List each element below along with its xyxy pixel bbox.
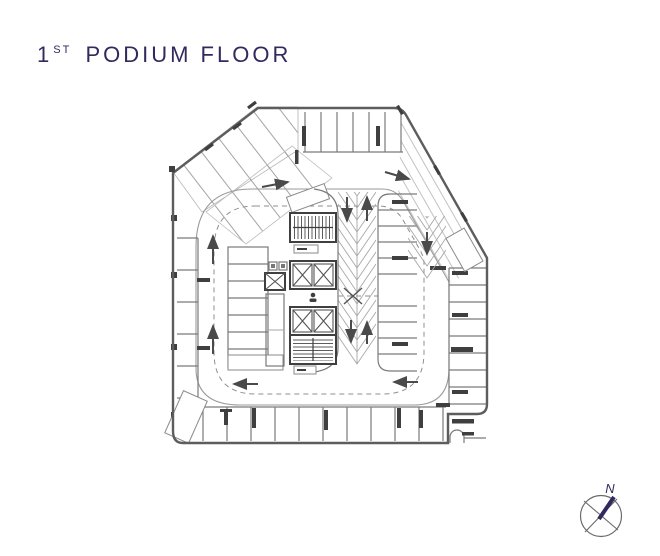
centre-right-stall-column	[378, 194, 417, 371]
parking-stalls-left-column	[171, 215, 198, 418]
elevator-bank-top	[290, 261, 336, 289]
person-icon	[310, 293, 317, 302]
page: { "title": { "number": "1", "ordinal": "…	[0, 0, 660, 556]
parking-stalls-bottom-row	[165, 391, 450, 444]
middle-left-stall-block	[197, 247, 287, 370]
stall-post	[295, 150, 299, 164]
elevator-bank-bottom	[290, 307, 336, 335]
elevator-stair-core	[290, 213, 336, 374]
north-label: N	[605, 481, 615, 496]
parking-stalls-top-row	[302, 112, 403, 152]
floor-plan-canvas: N	[0, 0, 660, 556]
entry-hook	[450, 430, 486, 443]
compass-icon: N	[581, 481, 622, 537]
